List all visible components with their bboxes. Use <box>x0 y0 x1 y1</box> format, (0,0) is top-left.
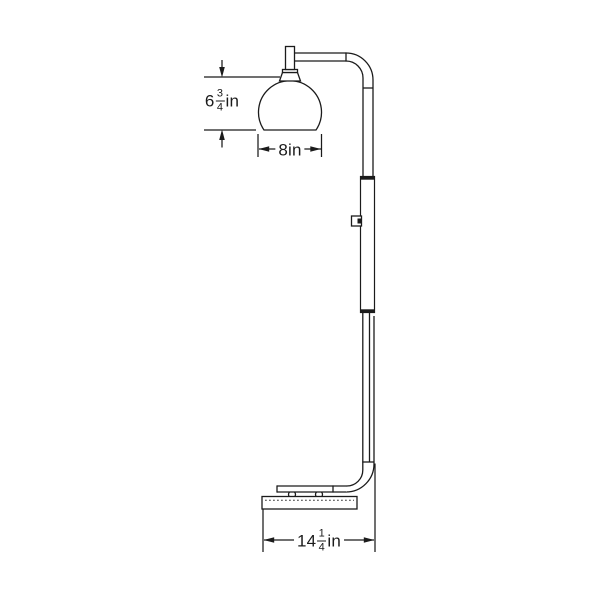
base-width-fraction: 14 <box>317 529 326 554</box>
shade-height-unit: in <box>226 93 240 110</box>
fraction-numerator: 1 <box>319 529 325 540</box>
shade-height-fraction: 34 <box>216 89 225 114</box>
base-width-unit: in <box>327 533 341 550</box>
socket <box>280 47 301 82</box>
shade-width-value: 8 <box>278 141 288 158</box>
upper-pole <box>363 78 374 177</box>
floor-lamp-line-drawing <box>0 0 600 600</box>
shade-width-unit: in <box>288 141 302 158</box>
arrow-right <box>364 537 375 542</box>
arrow-right <box>310 146 321 151</box>
shade-outline <box>259 81 322 130</box>
dimension-label-shade-width: 8in <box>275 141 304 158</box>
switch <box>352 216 363 226</box>
dimension-label-shade-height: 634in <box>205 89 239 114</box>
base-width-whole: 14 <box>297 533 316 550</box>
lower-pole <box>362 313 374 463</box>
arrow-up <box>219 130 225 141</box>
pole-sleeve <box>360 177 375 313</box>
arm <box>295 52 374 80</box>
arrow-left <box>264 537 275 542</box>
arrow-down <box>219 67 225 78</box>
base-curve <box>346 462 374 492</box>
fraction-numerator: 3 <box>217 89 223 100</box>
fraction-denominator: 4 <box>319 543 325 554</box>
arrow-left <box>259 146 270 151</box>
shade-height-whole: 6 <box>205 93 215 110</box>
foot-bar <box>277 485 347 492</box>
dimension-label-base-width: 1414in <box>294 529 344 554</box>
lamp-dimension-diagram: 634in 8in 1414in <box>0 0 600 600</box>
base-plate <box>262 497 357 510</box>
fraction-denominator: 4 <box>217 103 223 114</box>
